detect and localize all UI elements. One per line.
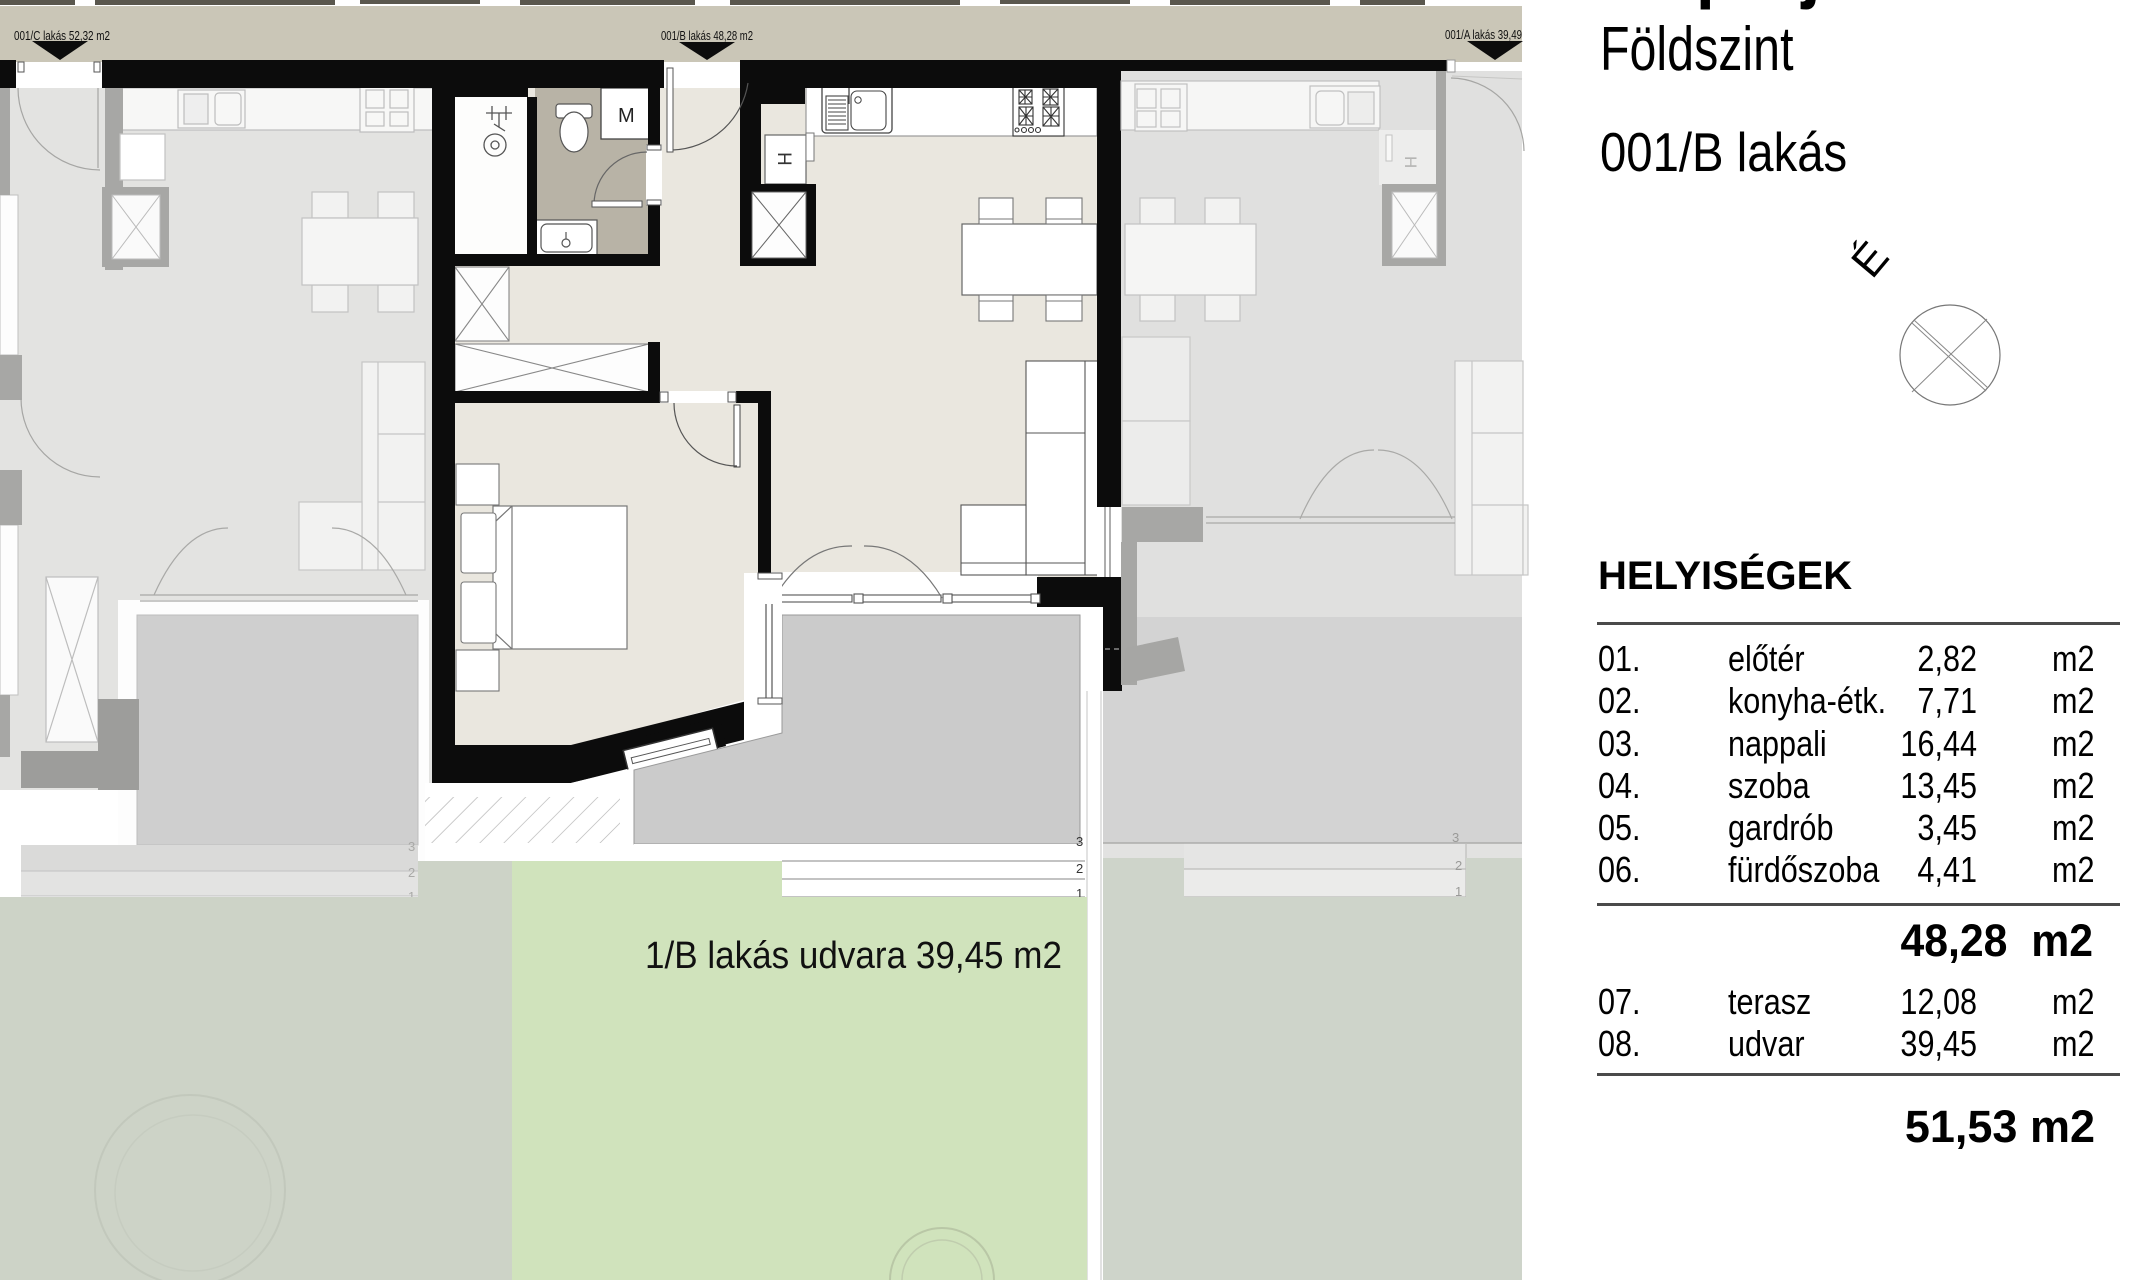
svg-text:1: 1 bbox=[1455, 884, 1462, 899]
svg-text:001/A lakás 39,49: 001/A lakás 39,49 bbox=[1445, 27, 1522, 42]
svg-text:001/C lakás 52,32 m2: 001/C lakás 52,32 m2 bbox=[14, 28, 110, 43]
svg-text:H: H bbox=[773, 152, 794, 166]
svg-text:001/B lakás 48,28 m2: 001/B lakás 48,28 m2 bbox=[661, 28, 753, 43]
svg-text:3: 3 bbox=[408, 839, 415, 854]
svg-text:3: 3 bbox=[1452, 830, 1459, 845]
svg-text:H: H bbox=[1401, 156, 1420, 168]
svg-text:2: 2 bbox=[1455, 858, 1462, 873]
svg-text:M: M bbox=[618, 105, 635, 127]
svg-text:2: 2 bbox=[1076, 861, 1083, 876]
svg-text:1/B lakás udvara 39,45 m2: 1/B lakás udvara 39,45 m2 bbox=[645, 935, 1062, 977]
svg-text:2: 2 bbox=[408, 865, 415, 880]
svg-text:3: 3 bbox=[1076, 834, 1083, 849]
